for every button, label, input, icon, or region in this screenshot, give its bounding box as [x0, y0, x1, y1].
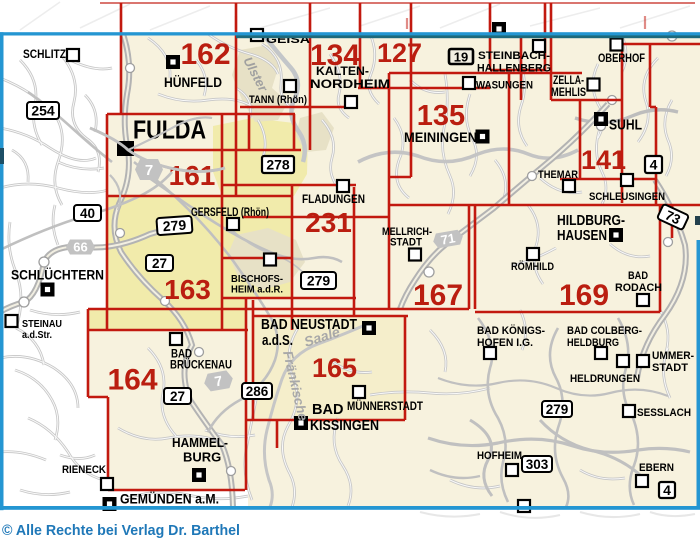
svg-text:OBERHOF: OBERHOF	[598, 53, 645, 65]
svg-text:303: 303	[526, 457, 549, 472]
svg-text:165: 165	[312, 353, 357, 383]
svg-text:SCHLITZ: SCHLITZ	[23, 49, 66, 61]
svg-text:4: 4	[650, 157, 658, 173]
svg-text:279: 279	[162, 217, 187, 235]
svg-text:161: 161	[169, 160, 216, 191]
svg-text:279: 279	[307, 273, 331, 289]
svg-text:27: 27	[170, 389, 185, 404]
svg-text:EBERN: EBERN	[639, 462, 674, 474]
svg-text:278: 278	[266, 157, 290, 173]
svg-text:© Alle Rechte bei Verlag Dr. B: © Alle Rechte bei Verlag Dr. Barthel	[2, 523, 240, 539]
svg-text:169: 169	[559, 279, 609, 312]
svg-text:HALLENBERG: HALLENBERG	[477, 63, 551, 75]
svg-text:SCHLEUSINGEN: SCHLEUSINGEN	[589, 191, 665, 203]
svg-text:MEHLIS: MEHLIS	[551, 87, 586, 99]
svg-text:SUHL: SUHL	[609, 117, 642, 134]
svg-text:4: 4	[663, 482, 671, 498]
svg-text:BRÜCKENAU: BRÜCKENAU	[170, 359, 232, 372]
svg-text:254: 254	[31, 103, 55, 119]
svg-text:SESSLACH: SESSLACH	[637, 407, 691, 419]
svg-text:SCHLÜCHTERN: SCHLÜCHTERN	[11, 268, 104, 283]
svg-text:HELDRUNGEN: HELDRUNGEN	[570, 373, 640, 385]
svg-text:STEINBACH-: STEINBACH-	[478, 50, 550, 62]
svg-text:KISSINGEN: KISSINGEN	[310, 418, 379, 434]
svg-text:167: 167	[413, 279, 463, 312]
svg-text:RIENECK: RIENECK	[62, 464, 106, 476]
svg-text:BAD NEUSTADT: BAD NEUSTADT	[261, 316, 357, 333]
svg-text:40: 40	[80, 206, 95, 221]
svg-text:GERSFELD (Rhön): GERSFELD (Rhön)	[191, 205, 269, 219]
svg-text:BAD COLBERG-: BAD COLBERG-	[567, 325, 642, 337]
svg-text:UMMER-: UMMER-	[652, 350, 694, 362]
svg-text:a.d.Str.: a.d.Str.	[22, 329, 52, 341]
svg-text:HAUSEN: HAUSEN	[557, 228, 607, 244]
svg-text:BAD: BAD	[312, 402, 343, 418]
svg-text:HÜNFELD: HÜNFELD	[164, 74, 222, 90]
svg-text:HOFHEIM: HOFHEIM	[477, 450, 522, 462]
svg-text:HAMMEL-: HAMMEL-	[172, 435, 228, 450]
svg-text:163: 163	[164, 274, 211, 305]
svg-text:a.d.S.: a.d.S.	[262, 332, 293, 349]
svg-text:MEININGEN: MEININGEN	[404, 130, 477, 145]
svg-text:KALTEN-: KALTEN-	[316, 66, 369, 78]
svg-text:TANN (Rhön): TANN (Rhön)	[249, 94, 307, 106]
svg-text:286: 286	[246, 384, 269, 399]
svg-text:66: 66	[73, 240, 87, 255]
svg-text:7: 7	[145, 162, 153, 179]
svg-text:STADT: STADT	[390, 237, 422, 249]
svg-text:135: 135	[417, 100, 465, 132]
svg-text:BAD: BAD	[628, 270, 648, 282]
svg-text:HEIM a.d.R.: HEIM a.d.R.	[231, 284, 283, 296]
svg-text:BURG: BURG	[183, 450, 221, 465]
svg-text:HILDBURG-: HILDBURG-	[557, 213, 625, 229]
svg-text:RÖMHILD: RÖMHILD	[511, 260, 554, 273]
svg-text:ZELLA-: ZELLA-	[553, 75, 584, 87]
svg-text:FLADUNGEN: FLADUNGEN	[302, 194, 365, 206]
svg-text:NORDHEIM: NORDHEIM	[310, 79, 390, 91]
svg-text:HELDBURG: HELDBURG	[567, 337, 619, 349]
svg-text:141: 141	[581, 145, 626, 175]
svg-text:71: 71	[440, 230, 457, 247]
svg-text:231: 231	[305, 207, 352, 238]
svg-text:BAD KÖNIGS-: BAD KÖNIGS-	[477, 324, 545, 337]
svg-text:STADT: STADT	[652, 362, 688, 374]
svg-text:164: 164	[107, 364, 157, 397]
svg-text:RODACH: RODACH	[615, 282, 662, 294]
svg-text:19: 19	[454, 50, 468, 65]
svg-text:27: 27	[152, 256, 167, 271]
svg-text:WASUNGEN: WASUNGEN	[476, 80, 533, 92]
svg-text:162: 162	[180, 38, 230, 71]
svg-text:127: 127	[377, 38, 422, 68]
svg-text:MÜNNERSTADT: MÜNNERSTADT	[347, 400, 423, 413]
svg-text:GEMÜNDEN a.M.: GEMÜNDEN a.M.	[120, 491, 219, 507]
svg-text:279: 279	[546, 402, 569, 417]
